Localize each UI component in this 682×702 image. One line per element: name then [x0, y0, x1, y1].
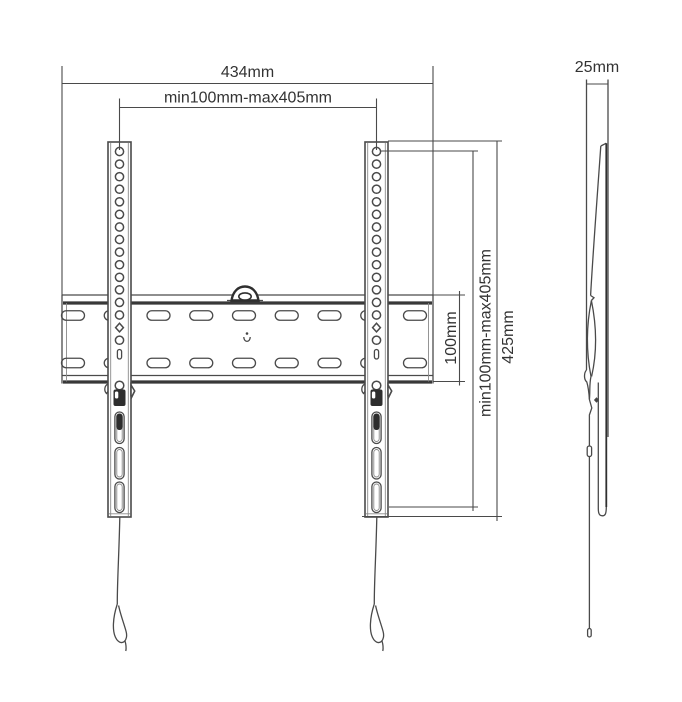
right-pull-cord: [370, 518, 383, 652]
dimension-plate-height: 100mm: [433, 291, 465, 386]
hanger-hook: [227, 287, 263, 301]
dim-label-depth: 25mm: [575, 59, 619, 76]
center-screw-icon: [244, 332, 250, 341]
dim-label-total-height: 425mm: [500, 310, 517, 363]
left-bracket-arm: [105, 142, 135, 517]
dim-label-plate-height: 100mm: [443, 311, 460, 364]
left-pull-cord: [113, 518, 126, 652]
dim-label-vesa-width-range: min100mm-max405mm: [164, 90, 332, 107]
dimension-vesa-width-range: min100mm-max405mm: [120, 90, 377, 151]
dim-label-vesa-height-range: min100mm-max405mm: [478, 249, 495, 417]
front-view: 434mm min100mm-max405mm 100mm min100mm-m…: [62, 64, 518, 651]
dim-label-total-width: 434mm: [221, 64, 274, 81]
right-bracket-arm: [362, 142, 392, 517]
side-pull-cord: [587, 416, 591, 638]
side-view: 25mm: [575, 59, 619, 637]
dimension-depth: 25mm: [575, 59, 619, 84]
side-profile: [585, 80, 608, 516]
dimension-vesa-height-range: min100mm-max405mm: [381, 151, 495, 511]
dimension-drawing: 434mm min100mm-max405mm 100mm min100mm-m…: [0, 0, 682, 702]
